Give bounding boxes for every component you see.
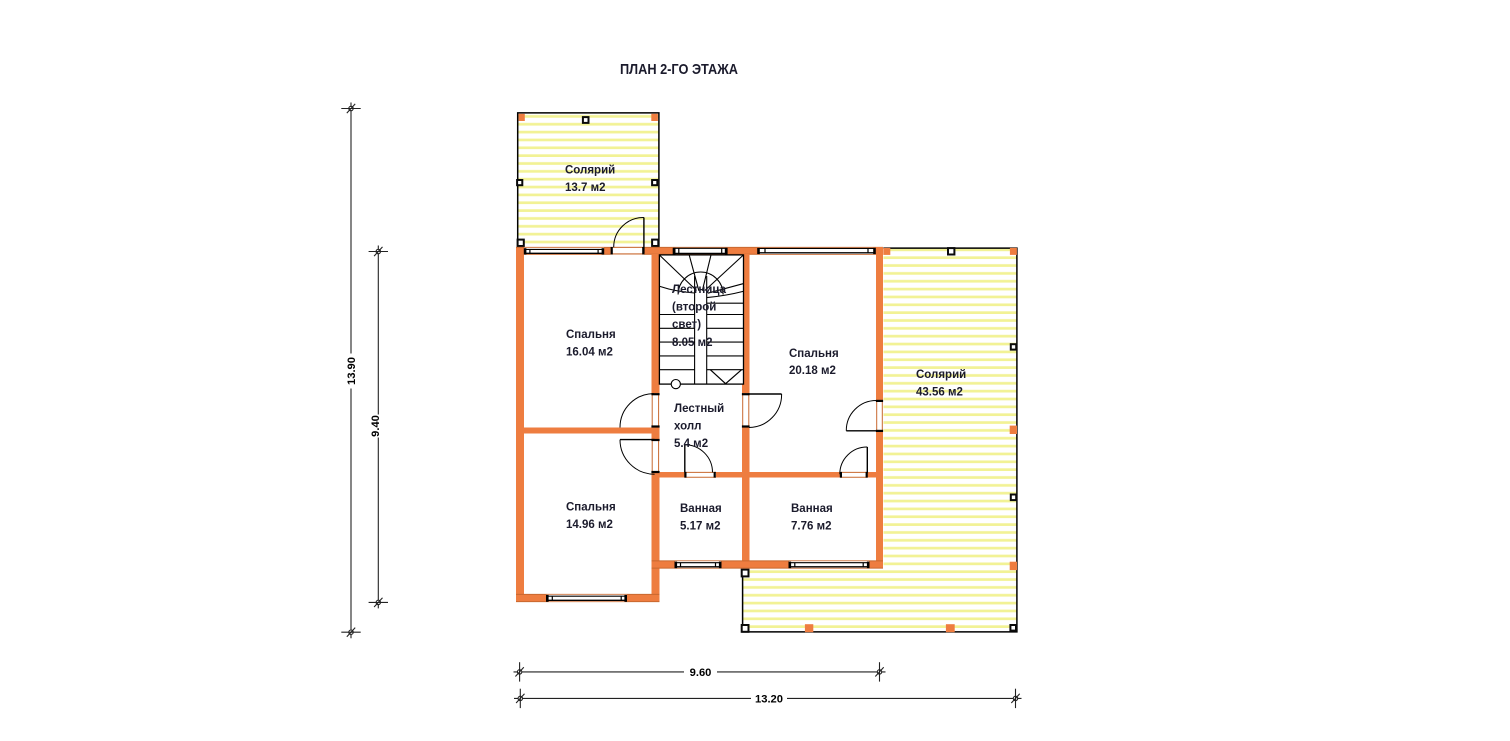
svg-text:8.05 м2: 8.05 м2 (672, 337, 712, 349)
svg-text:20.18 м2: 20.18 м2 (789, 365, 836, 377)
svg-text:13.7 м2: 13.7 м2 (565, 182, 605, 194)
svg-text:Лестный: Лестный (674, 403, 724, 415)
svg-text:(второй: (второй (672, 302, 716, 314)
svg-text:13.90: 13.90 (346, 357, 358, 385)
svg-text:свет): свет) (672, 319, 701, 331)
svg-text:5.17 м2: 5.17 м2 (680, 521, 720, 533)
svg-text:16.04 м2: 16.04 м2 (566, 347, 613, 359)
svg-text:9.40: 9.40 (370, 415, 382, 437)
svg-text:Солярий: Солярий (916, 369, 966, 381)
svg-text:Ванная: Ванная (791, 503, 833, 515)
svg-text:7.76 м2: 7.76 м2 (791, 521, 831, 533)
svg-text:5.4 м2: 5.4 м2 (674, 438, 708, 450)
svg-text:холл: холл (674, 421, 701, 433)
svg-text:Спальня: Спальня (789, 348, 839, 360)
svg-text:Спальня: Спальня (566, 329, 616, 341)
svg-text:14.96 м2: 14.96 м2 (566, 519, 613, 531)
svg-text:Солярий: Солярий (565, 165, 615, 177)
svg-text:Спальня: Спальня (566, 501, 616, 513)
svg-text:9.60: 9.60 (690, 667, 712, 679)
svg-text:Ванная: Ванная (680, 503, 722, 515)
svg-text:43.56 м2: 43.56 м2 (916, 387, 963, 399)
svg-text:13.20: 13.20 (755, 694, 783, 706)
svg-text:Лестница: Лестница (672, 284, 727, 296)
svg-text:ПЛАН 2-ГО ЭТАЖА: ПЛАН 2-ГО ЭТАЖА (620, 62, 738, 78)
